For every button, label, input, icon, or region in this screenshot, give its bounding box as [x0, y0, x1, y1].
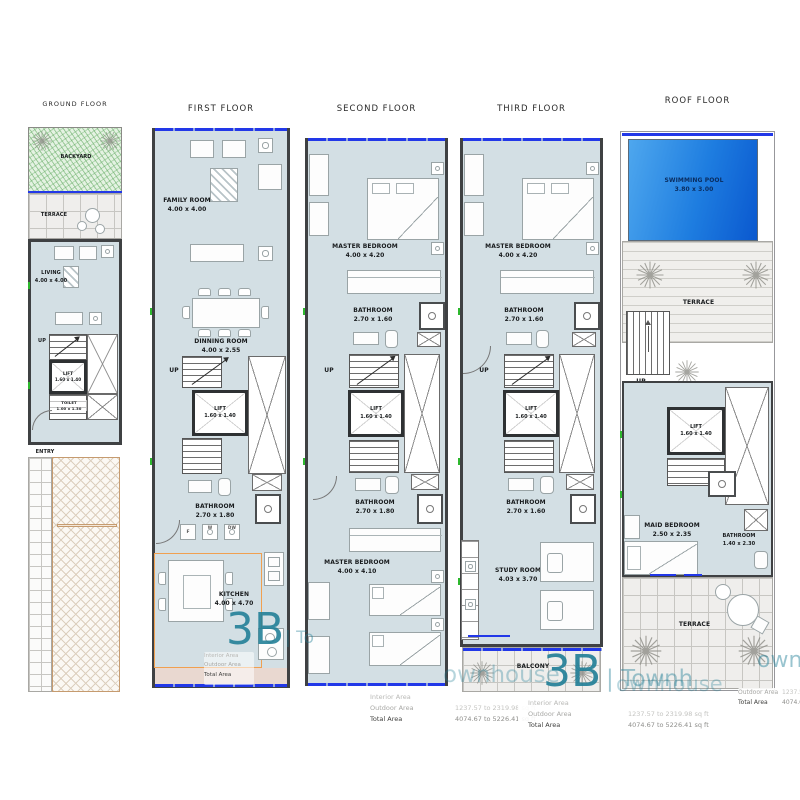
shaft-box — [572, 332, 596, 347]
watermark-3b: 3B — [543, 650, 601, 694]
shower — [574, 302, 600, 330]
entry-walkway — [28, 457, 52, 692]
title-third-floor: THIRD FLOOR — [460, 104, 603, 114]
bathroom-sink — [506, 332, 532, 345]
master-bedroom-label: MASTER BEDROOM 4.00 x 4.20 — [468, 242, 568, 260]
double-bed — [367, 178, 439, 240]
wall-tick — [620, 491, 622, 498]
driveway — [52, 457, 120, 692]
window-band — [308, 683, 445, 686]
speaker-box — [89, 312, 102, 325]
bathroom-1-label: BATHROOM 2.70 x 1.60 — [484, 306, 564, 324]
shaft-box — [417, 332, 441, 347]
title-roof-floor: ROOF FLOOR — [620, 96, 775, 106]
bathroom-sink — [508, 478, 534, 491]
shower — [255, 494, 281, 524]
area-table-roof: Outdoor Area1237.57 to 2319.98 sq ft Tot… — [738, 688, 800, 718]
study-desk — [540, 542, 594, 582]
watermark-townhouse-fragment: ownhouse — [616, 674, 723, 695]
nightstand — [586, 242, 599, 255]
toilet-wc — [218, 478, 231, 496]
terrace-table — [85, 208, 100, 223]
window-line — [468, 635, 510, 637]
dining-chair — [238, 288, 251, 296]
area-table-third: Interior Area Outdoor Area1237.57 to 231… — [518, 698, 732, 738]
dining-chair — [198, 288, 211, 296]
dining-chair — [218, 329, 231, 337]
wall-tick — [620, 431, 622, 438]
dining-chair — [218, 288, 231, 296]
wall-tick — [150, 458, 152, 465]
ground-terrace: TERRACE — [28, 193, 122, 239]
wall-tick — [150, 308, 152, 315]
driveway-divider — [57, 524, 117, 527]
double-bed — [522, 178, 594, 240]
toilet-wc — [540, 476, 554, 494]
plant-icon — [31, 130, 53, 152]
toilet-wc — [385, 476, 399, 494]
bathroom-sink — [355, 478, 381, 491]
terrace-upper-label: TERRACE — [671, 298, 726, 307]
shaft-box — [566, 474, 594, 490]
plant-icon — [635, 260, 665, 290]
watermark-3b: 3B — [226, 608, 284, 652]
stairs-down — [504, 440, 554, 473]
up-label: UP — [474, 366, 494, 375]
wall-tick — [458, 578, 460, 585]
entry-label: ENTRY — [32, 449, 58, 457]
shaft-box — [252, 474, 282, 491]
kitchen-chair — [158, 598, 166, 611]
armchair — [222, 140, 246, 158]
lift-shaft: LIFT 1.60 x 1.40 — [192, 390, 248, 436]
speaker-box — [101, 245, 114, 258]
up-label: UP — [319, 366, 339, 375]
swimming-pool-label: SWIMMING POOL 3.80 x 3.00 — [639, 176, 749, 194]
swimming-pool: SWIMMING POOL 3.80 x 3.00 — [628, 139, 758, 241]
shaft-box — [87, 394, 118, 420]
armchair — [258, 164, 282, 190]
stairs-down — [182, 438, 222, 474]
kitchen-chair — [158, 572, 166, 585]
appliance-fridge: F — [180, 524, 196, 540]
terrace-lower-label: TERRACE — [667, 620, 722, 629]
lift-shaft: LIFT 1.60 x 1.40 — [667, 407, 725, 455]
terrace-label: TERRACE — [33, 212, 75, 220]
wall-tick — [303, 308, 305, 315]
stair-landing — [404, 354, 440, 473]
terrace-chair — [715, 584, 731, 600]
watermark-townhouse-fragment: | To — [285, 630, 314, 647]
roof-bathroom-label: BATHROOM 1.40 x 2.30 — [716, 533, 762, 548]
stair-landing — [87, 334, 118, 394]
desk — [464, 154, 484, 196]
single-bed — [369, 584, 441, 616]
study-desk — [540, 590, 594, 630]
plant-icon — [629, 634, 663, 668]
floorplan-sheet: GROUND FLOOR FIRST FLOOR SECOND FLOOR TH… — [0, 0, 800, 800]
backyard-area: BACKYARD — [28, 127, 122, 193]
plant-icon — [99, 130, 121, 152]
window-line — [622, 133, 773, 136]
terrace-chair — [95, 224, 105, 234]
sofa — [55, 312, 83, 325]
master-bedroom-2-label: MASTER BEDROOM 4.00 x 4.10 — [307, 558, 407, 576]
window-band — [308, 138, 445, 141]
study-shelves — [461, 540, 479, 640]
roof-access-stairs — [626, 311, 670, 375]
wall-tick — [28, 382, 30, 389]
terrace-chair — [77, 221, 87, 231]
kitchen-counter — [264, 552, 284, 586]
wall-tick — [303, 458, 305, 465]
living-label: LIVING 4.00 x 4.00 — [31, 270, 71, 285]
title-first-floor: FIRST FLOOR — [152, 104, 290, 114]
bathroom-sink — [353, 332, 379, 345]
family-room-label: FAMILY ROOM 4.00 x 4.00 — [156, 196, 218, 214]
wardrobe — [309, 202, 329, 236]
nightstand — [431, 618, 444, 631]
lift-shaft: LIFT 1.60 x 1.40 — [348, 390, 404, 437]
backyard-label: BACKYARD — [29, 154, 123, 162]
wardrobe — [624, 515, 640, 539]
window-line — [650, 574, 676, 576]
wall-tick — [458, 458, 460, 465]
shower — [417, 494, 443, 524]
third-floor-plan: MASTER BEDROOM 4.00 x 4.20 BATHROOM 2.70… — [460, 138, 603, 692]
sofa — [79, 246, 97, 260]
wall-tick — [458, 308, 460, 315]
sofa — [500, 270, 594, 294]
up-label: UP — [164, 366, 184, 375]
ground-floor-plan: BACKYARD TERRACE LIVING 4.00 x 4.00 UP — [28, 127, 122, 692]
desk — [309, 154, 329, 196]
bathroom-1-label: BATHROOM 2.70 x 1.60 — [333, 306, 413, 324]
watermark-townhouse-fragment: ownh — [757, 650, 800, 672]
roof-floor-plan: SWIMMING POOL 3.80 x 3.00 TERRACE UP LIF… — [620, 131, 775, 691]
stairs-up — [182, 356, 222, 388]
door-arc — [32, 410, 52, 430]
nightstand — [431, 242, 444, 255]
stairs-down — [349, 440, 399, 473]
master-bedroom-1-label: MASTER BEDROOM 4.00 x 4.20 — [315, 242, 415, 260]
plant-icon — [741, 260, 771, 290]
stair-landing — [559, 354, 595, 473]
nightstand — [431, 570, 444, 583]
kitchen-chair — [225, 572, 233, 585]
single-bed — [369, 632, 441, 666]
maid-bed — [624, 541, 698, 575]
window-band — [155, 128, 287, 131]
wall-tick — [28, 282, 30, 289]
bench-sofa — [349, 528, 441, 552]
bathroom-2-label: BATHROOM 2.70 x 1.60 — [486, 498, 566, 516]
area-table-second: Interior Area Outdoor Area1237.57 to 231… — [370, 692, 538, 729]
toilet-label: TOILET 1.00 x 1.30 — [50, 400, 88, 411]
dinning-room-label: DINNING ROOM 4.00 x 2.55 — [176, 337, 266, 355]
toilet-wc — [536, 330, 549, 348]
lift-shaft: LIFT 1.60 x 1.40 — [49, 360, 87, 394]
bathroom-sink — [188, 480, 212, 493]
toilet-room: TOILET 1.00 x 1.30 — [49, 394, 87, 420]
maid-bedroom-label: MAID BEDROOM 2.50 x 2.35 — [632, 521, 712, 539]
sofa — [54, 246, 74, 260]
dining-chair — [238, 329, 251, 337]
shower — [419, 302, 445, 330]
nightstand — [431, 162, 444, 175]
speaker-box — [258, 138, 273, 153]
speaker-box — [258, 246, 273, 261]
title-ground-floor: GROUND FLOOR — [28, 100, 122, 108]
window-line — [684, 574, 702, 576]
area-table-first: Interior Area Outdoor Area Total Area — [204, 652, 254, 685]
bathroom-2-label: BATHROOM 2.70 x 1.80 — [335, 498, 415, 516]
toilet-wc — [754, 551, 768, 569]
window-band — [463, 138, 600, 141]
appliance-dishwasher-label: DW — [224, 525, 240, 531]
shower — [708, 471, 736, 497]
lift-shaft: LIFT 1.60 x 1.40 — [503, 390, 559, 437]
dining-table — [192, 298, 260, 328]
second-floor-plan: MASTER BEDROOM 4.00 x 4.20 BATHROOM 2.70… — [305, 138, 448, 690]
shaft-box — [411, 474, 439, 490]
toilet-wc — [385, 330, 398, 348]
dining-chair — [182, 306, 190, 319]
shower — [570, 494, 596, 524]
dining-chair — [261, 306, 269, 319]
desk — [308, 582, 330, 620]
appliance-washer-label: W — [202, 525, 218, 531]
dining-chair — [198, 329, 211, 337]
shaft-box — [744, 509, 768, 531]
bathroom-label: BATHROOM 2.70 x 1.80 — [180, 502, 250, 520]
ground-interior: LIVING 4.00 x 4.00 UP LIFT 1.60 x 1.40 T… — [28, 239, 122, 445]
nightstand — [586, 162, 599, 175]
wardrobe — [464, 202, 484, 236]
sofa — [190, 244, 244, 262]
title-second-floor: SECOND FLOOR — [305, 104, 448, 114]
stair-landing — [248, 356, 286, 474]
sofa — [347, 270, 441, 294]
armchair — [190, 140, 214, 158]
